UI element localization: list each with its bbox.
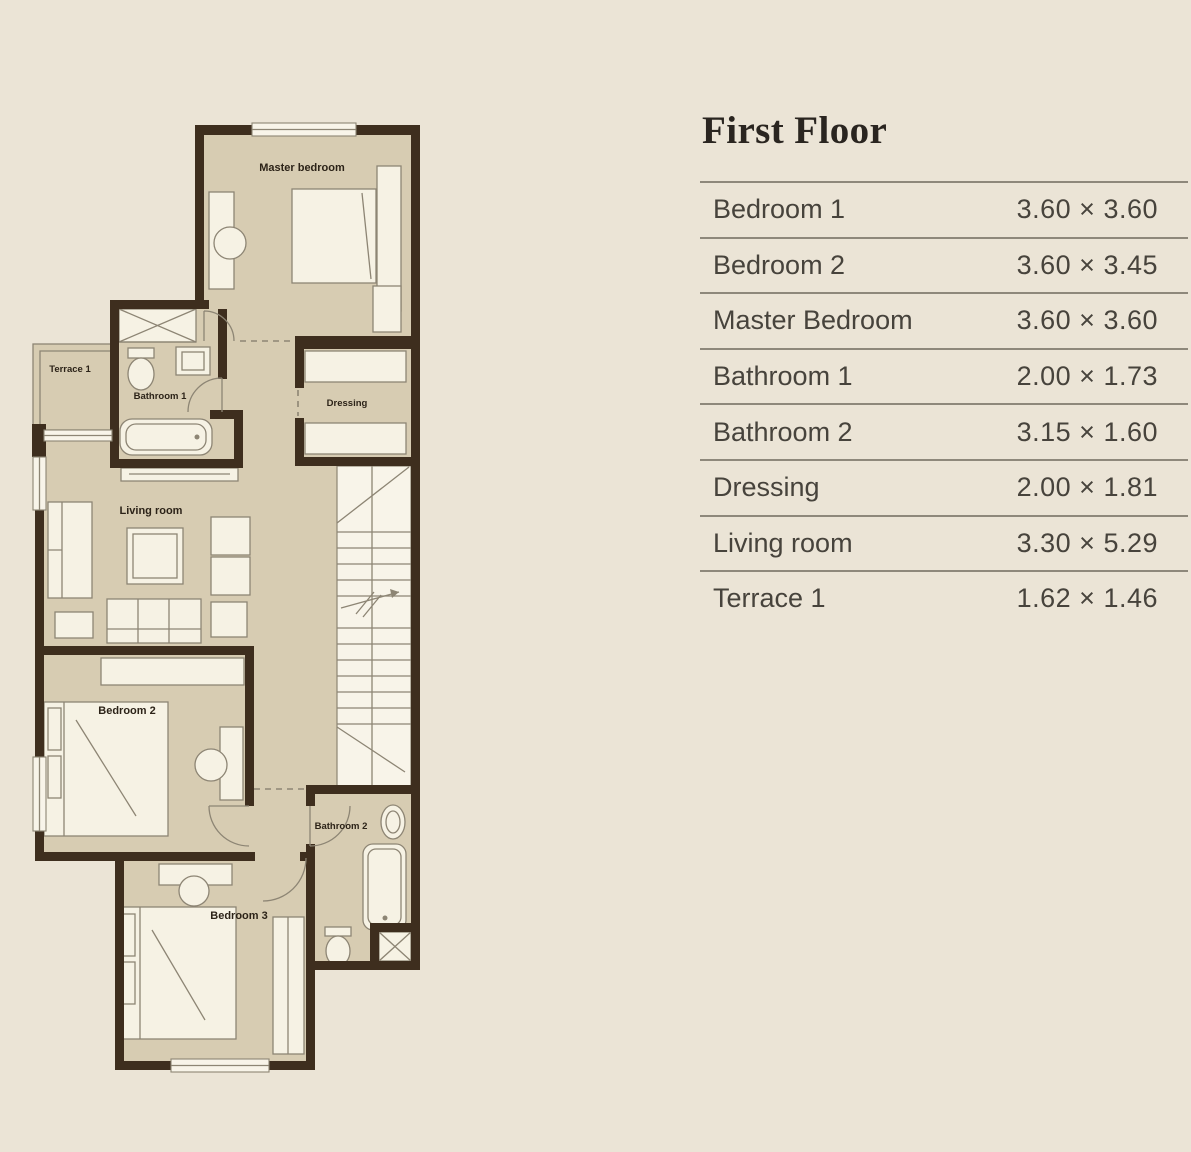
closet [305, 351, 406, 382]
room-label-bathroom2: Bathroom 2 [315, 821, 368, 832]
table-row: Bedroom 1 3.60 × 3.60 [700, 181, 1188, 237]
closet [305, 423, 406, 454]
room-name: Master Bedroom [713, 305, 913, 336]
table-row: Bathroom 2 3.15 × 1.60 [700, 403, 1188, 459]
room-label-bedroom3: Bedroom 3 [210, 910, 267, 922]
room-size: 3.60 × 3.45 [1017, 250, 1158, 281]
toilet-tank [128, 348, 154, 358]
room-name: Bedroom 2 [713, 250, 845, 281]
sink [176, 347, 210, 375]
bench [373, 286, 401, 332]
armchair [211, 517, 250, 555]
stairs [337, 466, 411, 786]
coffee-table [127, 528, 183, 584]
room-name: Living room [713, 528, 853, 559]
room-name: Bathroom 2 [713, 417, 853, 448]
room-size: 3.15 × 1.60 [1017, 417, 1158, 448]
room-size: 2.00 × 1.73 [1017, 361, 1158, 392]
room-name: Bedroom 1 [713, 194, 845, 225]
room-size: 1.62 × 1.46 [1017, 583, 1158, 614]
round-table [195, 749, 227, 781]
side-table [55, 612, 93, 638]
room-size: 3.60 × 3.60 [1017, 305, 1158, 336]
room-name: Bathroom 1 [713, 361, 853, 392]
sofa [107, 599, 201, 643]
room-label-bedroom2: Bedroom 2 [98, 705, 155, 717]
sink [381, 805, 405, 839]
page-title: First Floor [702, 108, 887, 153]
table-row: Master Bedroom 3.60 × 3.60 [700, 292, 1188, 348]
room-size: 3.60 × 3.60 [1017, 194, 1158, 225]
toilet-tank [325, 927, 351, 936]
room-name: Dressing [713, 472, 820, 503]
room-label-master-bedroom: Master bedroom [259, 162, 345, 174]
room-label-living-room: Living room [120, 505, 183, 517]
room-name: Terrace 1 [713, 583, 826, 614]
dresser [101, 658, 244, 685]
table-row: Dressing 2.00 × 1.81 [700, 459, 1188, 515]
room-size: 2.00 × 1.81 [1017, 472, 1158, 503]
table-row: Bedroom 2 3.60 × 3.45 [700, 237, 1188, 293]
room-label-bathroom1: Bathroom 1 [134, 391, 188, 402]
table-row: Living room 3.30 × 5.29 [700, 515, 1188, 571]
page: Master bedroom Terrace 1 Bathroom 1 Dres… [0, 0, 1191, 1152]
chair [179, 876, 209, 906]
room-label-dressing: Dressing [327, 398, 368, 409]
toilet [128, 358, 154, 390]
terrace [33, 344, 115, 430]
floor-plan: Master bedroom Terrace 1 Bathroom 1 Dres… [0, 0, 460, 1152]
armchair [211, 557, 250, 595]
round-table [214, 227, 246, 259]
room-label-terrace: Terrace 1 [49, 364, 91, 375]
room-size: 3.30 × 5.29 [1017, 528, 1158, 559]
table-row: Bathroom 1 2.00 × 1.73 [700, 348, 1188, 404]
dimensions-table: Bedroom 1 3.60 × 3.60 Bedroom 2 3.60 × 3… [700, 181, 1188, 626]
table-row: Terrace 1 1.62 × 1.46 [700, 570, 1188, 626]
side-table [211, 602, 247, 637]
